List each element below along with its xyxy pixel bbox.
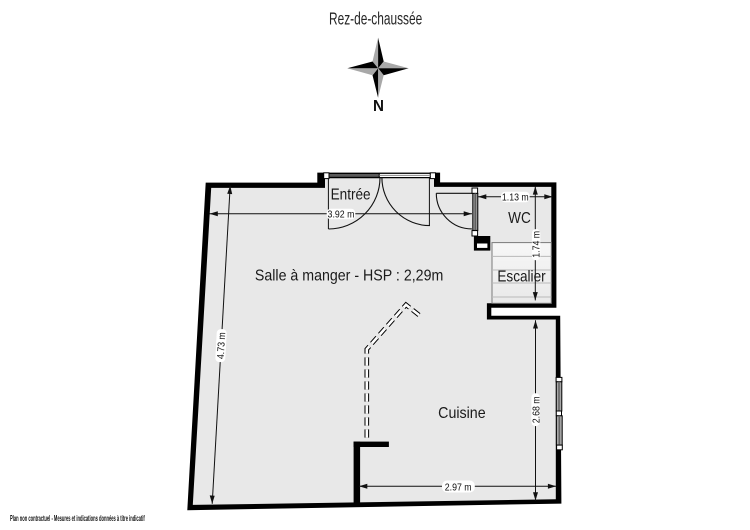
svg-text:Rez-de-chaussée: Rez-de-chaussée <box>329 9 422 29</box>
svg-text:3.92 m: 3.92 m <box>328 208 355 220</box>
svg-text:Entrée: Entrée <box>331 186 371 203</box>
svg-text:1.74 m: 1.74 m <box>530 231 542 258</box>
svg-text:Escalier: Escalier <box>497 269 545 286</box>
svg-text:Plan non contractuel - Mesures: Plan non contractuel - Mesures et indica… <box>10 515 145 524</box>
svg-text:N: N <box>373 98 384 115</box>
svg-text:1.13 m: 1.13 m <box>502 191 529 203</box>
svg-text:4.73 m: 4.73 m <box>214 332 227 360</box>
svg-text:2.97 m: 2.97 m <box>445 481 472 493</box>
svg-text:Salle à manger - HSP : 2,29m: Salle à manger - HSP : 2,29m <box>255 267 443 285</box>
svg-text:2.68 m: 2.68 m <box>530 396 542 423</box>
svg-text:Cuisine: Cuisine <box>438 404 485 422</box>
svg-text:WC: WC <box>508 210 531 227</box>
